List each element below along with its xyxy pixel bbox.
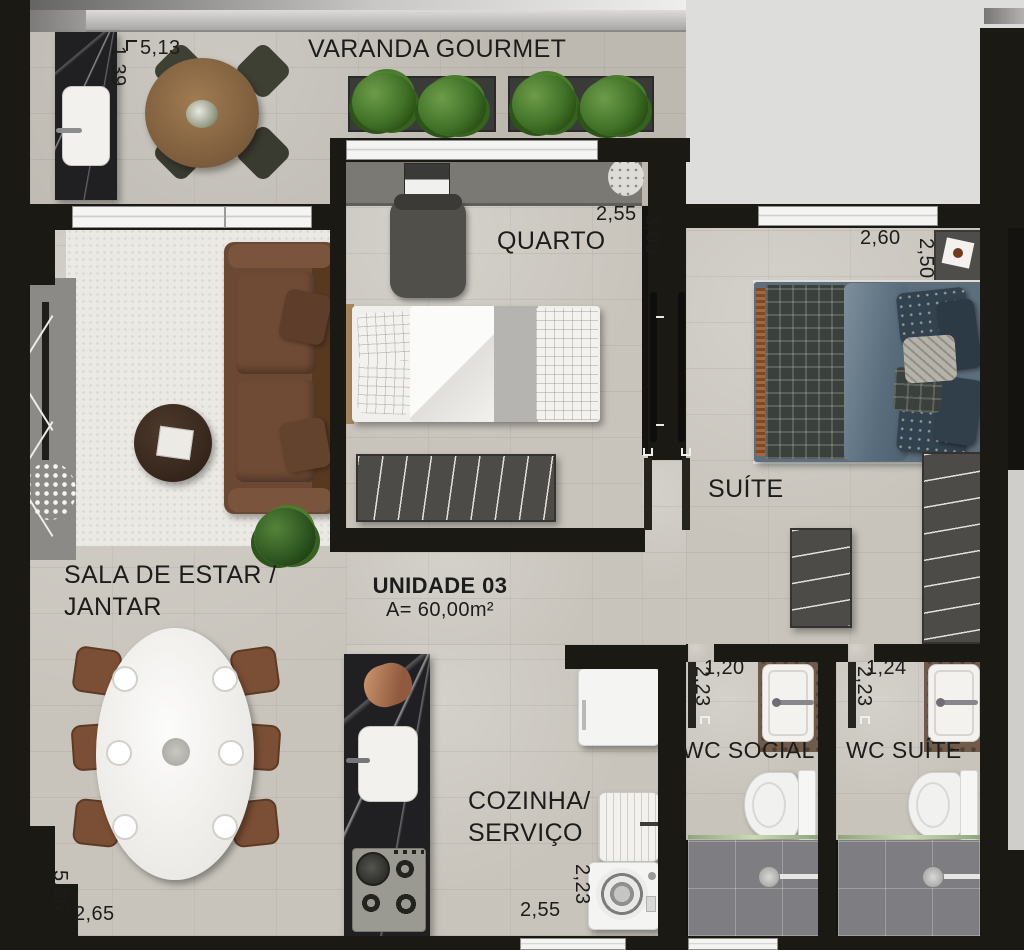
place-setting [212, 814, 238, 840]
cozinha-width-dim: 2,55 [520, 900, 561, 921]
wc-suite-faucet-knob [936, 698, 945, 707]
burner-dots [394, 850, 424, 854]
suite-depth-dim: 2,50 [915, 238, 936, 279]
wall-bottom [0, 936, 1024, 950]
place-setting [212, 666, 238, 692]
quarto-pillow [357, 359, 413, 415]
wc-suite-toilet-tank [960, 770, 978, 840]
tv-stand-mark [656, 424, 664, 426]
sala-depth-dim: 5,85 [49, 870, 70, 911]
cooktop-burner [358, 890, 384, 916]
nightstand-cup [953, 248, 963, 258]
window-quarto [346, 140, 598, 160]
place-setting [218, 740, 244, 766]
cozinha-label-line2: SERVIÇO [468, 820, 583, 846]
quarto-duvet [410, 306, 496, 422]
top-edge-strip [0, 0, 686, 10]
wall-wc-middle [818, 644, 836, 936]
suite-pillow-knit [902, 334, 957, 384]
kitchen-faucet [346, 758, 370, 763]
plant-sala [254, 508, 316, 566]
sala-label-line1: SALA DE ESTAR / [64, 562, 277, 588]
wall-right-bottom [1006, 850, 1024, 950]
varanda-label: VARANDA GOURMET [308, 36, 566, 62]
frying-pan [356, 852, 390, 886]
dim-tick [126, 40, 137, 51]
tv-partition-suite [678, 292, 685, 442]
plant-bush [512, 74, 576, 134]
wc-suite-faucet [940, 700, 978, 705]
table-center-dish [162, 738, 190, 766]
door-frame-mark [860, 716, 870, 724]
floor-plan: VARANDA GOURMET 5,13 1,39 QUARTO 2,55 3,… [0, 0, 1024, 950]
sala-width-dim: 2,65 [74, 904, 115, 925]
desk-flowers [608, 158, 644, 196]
tv-stand-mark [656, 316, 664, 318]
plant-bush [418, 78, 486, 136]
varanda-depth-dim: 1,39 [107, 46, 128, 87]
sofa-pillow [278, 416, 332, 473]
wall-quarto-bottom [330, 528, 645, 552]
fridge-handle [582, 700, 586, 730]
laundry-tank [598, 792, 660, 862]
sliding-door-varanda [72, 206, 312, 228]
door-frame-mark [643, 448, 653, 456]
cooktop-burner [392, 890, 420, 918]
window-bottom-kitchen [520, 938, 626, 950]
suite-closet [790, 528, 852, 628]
suite-throw-plaid [766, 285, 846, 459]
wc-suite-depth-dim: 2,23 [853, 666, 874, 707]
quarto-depth-dim: 3,03 [641, 214, 662, 255]
sala-label-line2: JANTAR [64, 594, 162, 620]
quarto-pillow [357, 311, 414, 364]
wc-suite-label: WC SUÍTE [846, 738, 962, 762]
exterior-block-top-right [686, 0, 980, 204]
cozinha-depth-dim: 2,23 [571, 864, 592, 905]
washer-knob [648, 872, 656, 880]
railing-top-right [984, 8, 1024, 24]
sofa-armrest-top [228, 244, 332, 268]
wall-kitchen-wc [658, 645, 686, 950]
kitchen-sink [358, 726, 418, 802]
washer-panel [646, 896, 656, 912]
door-leaf-quarto [644, 458, 652, 530]
suite-bed-knit-edge [756, 288, 765, 456]
cozinha-label-line1: COZINHA/ [468, 788, 591, 814]
wc-suite-shower-head [922, 866, 944, 888]
balcony-parapet [6, 10, 686, 32]
wc-social-depth-dim: 2,23 [691, 666, 712, 707]
quarto-wardrobe [356, 454, 556, 522]
wall-corner-top-right [980, 28, 1024, 228]
wall-quarto-left [330, 138, 346, 552]
desk-chair-back [394, 194, 462, 210]
washer-drum [596, 868, 648, 920]
door-frame-mark [681, 448, 691, 456]
place-setting [112, 666, 138, 692]
wc-social-faucet [776, 700, 814, 705]
door-frame-mark [700, 716, 710, 724]
unit-area: A= 60,00m² [365, 600, 515, 621]
wc-suite-shower-arm [940, 874, 980, 879]
fridge [578, 668, 660, 746]
varanda-sink [62, 86, 110, 166]
suite-width-dim: 2,60 [860, 228, 901, 249]
desk-chair [390, 198, 466, 298]
varanda-width-dim: 5,13 [140, 38, 181, 59]
white-flowers [24, 462, 76, 520]
plant-bush [580, 78, 648, 136]
table-centerpiece [186, 100, 218, 128]
wall-right [980, 228, 1008, 950]
suite-label: SUÍTE [708, 476, 784, 502]
wc-social-toilet-seat [752, 782, 786, 828]
sliding-door-split [224, 206, 226, 228]
wc-social-label: WC SOCIAL [682, 738, 815, 762]
wc-social-shower-floor [688, 840, 818, 936]
exterior-strip-right [1006, 470, 1024, 850]
wc-suite-shower-glass [838, 835, 980, 839]
unit-name: UNIDADE 03 [365, 574, 515, 597]
suite-wardrobe [922, 452, 982, 644]
quarto-label: QUARTO [497, 228, 605, 254]
place-setting [106, 740, 132, 766]
place-setting [112, 814, 138, 840]
wc-social-shower-arm [776, 874, 818, 879]
window-suite [758, 206, 938, 226]
plant-bush [352, 72, 416, 132]
quarto-width-dim: 2,55 [596, 204, 637, 225]
wc-social-shower-glass [688, 835, 818, 839]
quarto-blanket-plaid [536, 308, 598, 420]
wall-kitchen-stub [565, 645, 660, 669]
varanda-faucet [56, 128, 82, 133]
quarto-desk [346, 160, 642, 206]
wc-suite-toilet-seat [916, 782, 950, 828]
wc-social-shower-head [758, 866, 780, 888]
cooktop-burner [392, 856, 418, 882]
tv-partition-quarto [650, 292, 657, 442]
wall-left [0, 0, 30, 950]
ottoman-tray [156, 426, 194, 460]
quarto-blanket-gray [494, 306, 538, 422]
wc-suite-shower-floor [838, 840, 980, 936]
door-leaf-suite [682, 458, 690, 530]
wc-social-toilet-tank [798, 770, 816, 840]
window-bottom-wc [688, 938, 778, 950]
wc-social-faucet-knob [772, 698, 781, 707]
